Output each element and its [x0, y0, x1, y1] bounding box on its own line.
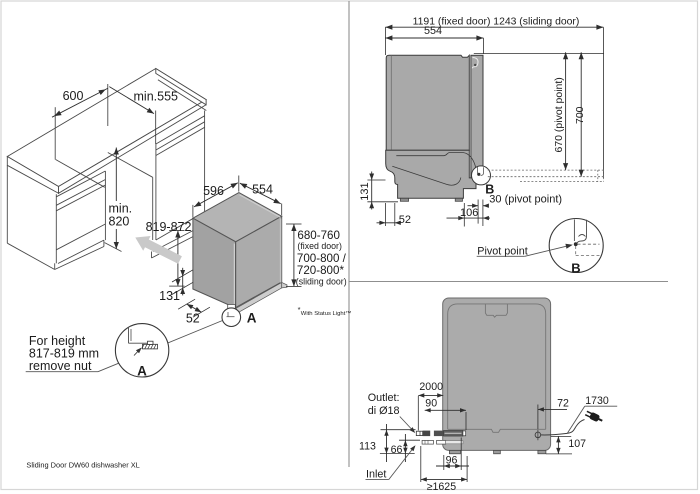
- svg-text:2000: 2000: [419, 381, 443, 393]
- svg-text:106: 106: [460, 207, 478, 219]
- svg-text:820: 820: [109, 215, 130, 229]
- svg-text:107: 107: [568, 438, 586, 450]
- svg-text:720-800*: 720-800*: [297, 264, 345, 277]
- svg-text:remove nut: remove nut: [29, 359, 92, 373]
- svg-text:di Ø18: di Ø18: [368, 405, 400, 417]
- svg-text:52: 52: [399, 214, 411, 226]
- svg-text:B: B: [571, 261, 580, 276]
- svg-text:700: 700: [574, 106, 586, 124]
- svg-text:A: A: [137, 363, 147, 378]
- svg-text:min.555: min.555: [134, 90, 179, 104]
- svg-text:596: 596: [203, 184, 224, 198]
- svg-text:554: 554: [252, 183, 273, 197]
- svg-text:With Status Light™: With Status Light™: [301, 310, 351, 317]
- svg-text:Pivot point: Pivot point: [477, 245, 527, 257]
- svg-text:Inlet: Inlet: [366, 468, 386, 480]
- svg-text:Outlet:: Outlet:: [368, 392, 400, 404]
- svg-text:90: 90: [425, 397, 437, 409]
- svg-text:72: 72: [557, 398, 569, 410]
- svg-text:600: 600: [63, 89, 84, 103]
- svg-text:131: 131: [159, 289, 180, 303]
- svg-text:Sliding Door DW60 dishwasher X: Sliding Door DW60 dishwasher XL: [26, 461, 139, 470]
- svg-text:554: 554: [424, 25, 442, 37]
- svg-text:(fixed door): (fixed door): [297, 241, 342, 251]
- svg-text:≥1625: ≥1625: [427, 481, 456, 493]
- svg-text:66: 66: [391, 444, 403, 456]
- svg-text:113: 113: [359, 441, 376, 453]
- svg-text:(sliding door): (sliding door): [296, 276, 347, 286]
- svg-text:131: 131: [359, 182, 371, 200]
- svg-text:min.: min.: [109, 202, 133, 216]
- svg-text:A: A: [247, 311, 257, 326]
- svg-text:52: 52: [186, 312, 200, 326]
- svg-text:30 (pivot point): 30 (pivot point): [489, 194, 562, 206]
- svg-text:1730: 1730: [585, 395, 609, 407]
- svg-text:96: 96: [446, 454, 458, 466]
- svg-text:819-872: 819-872: [146, 220, 192, 234]
- svg-text:670 (pivot point): 670 (pivot point): [553, 77, 565, 152]
